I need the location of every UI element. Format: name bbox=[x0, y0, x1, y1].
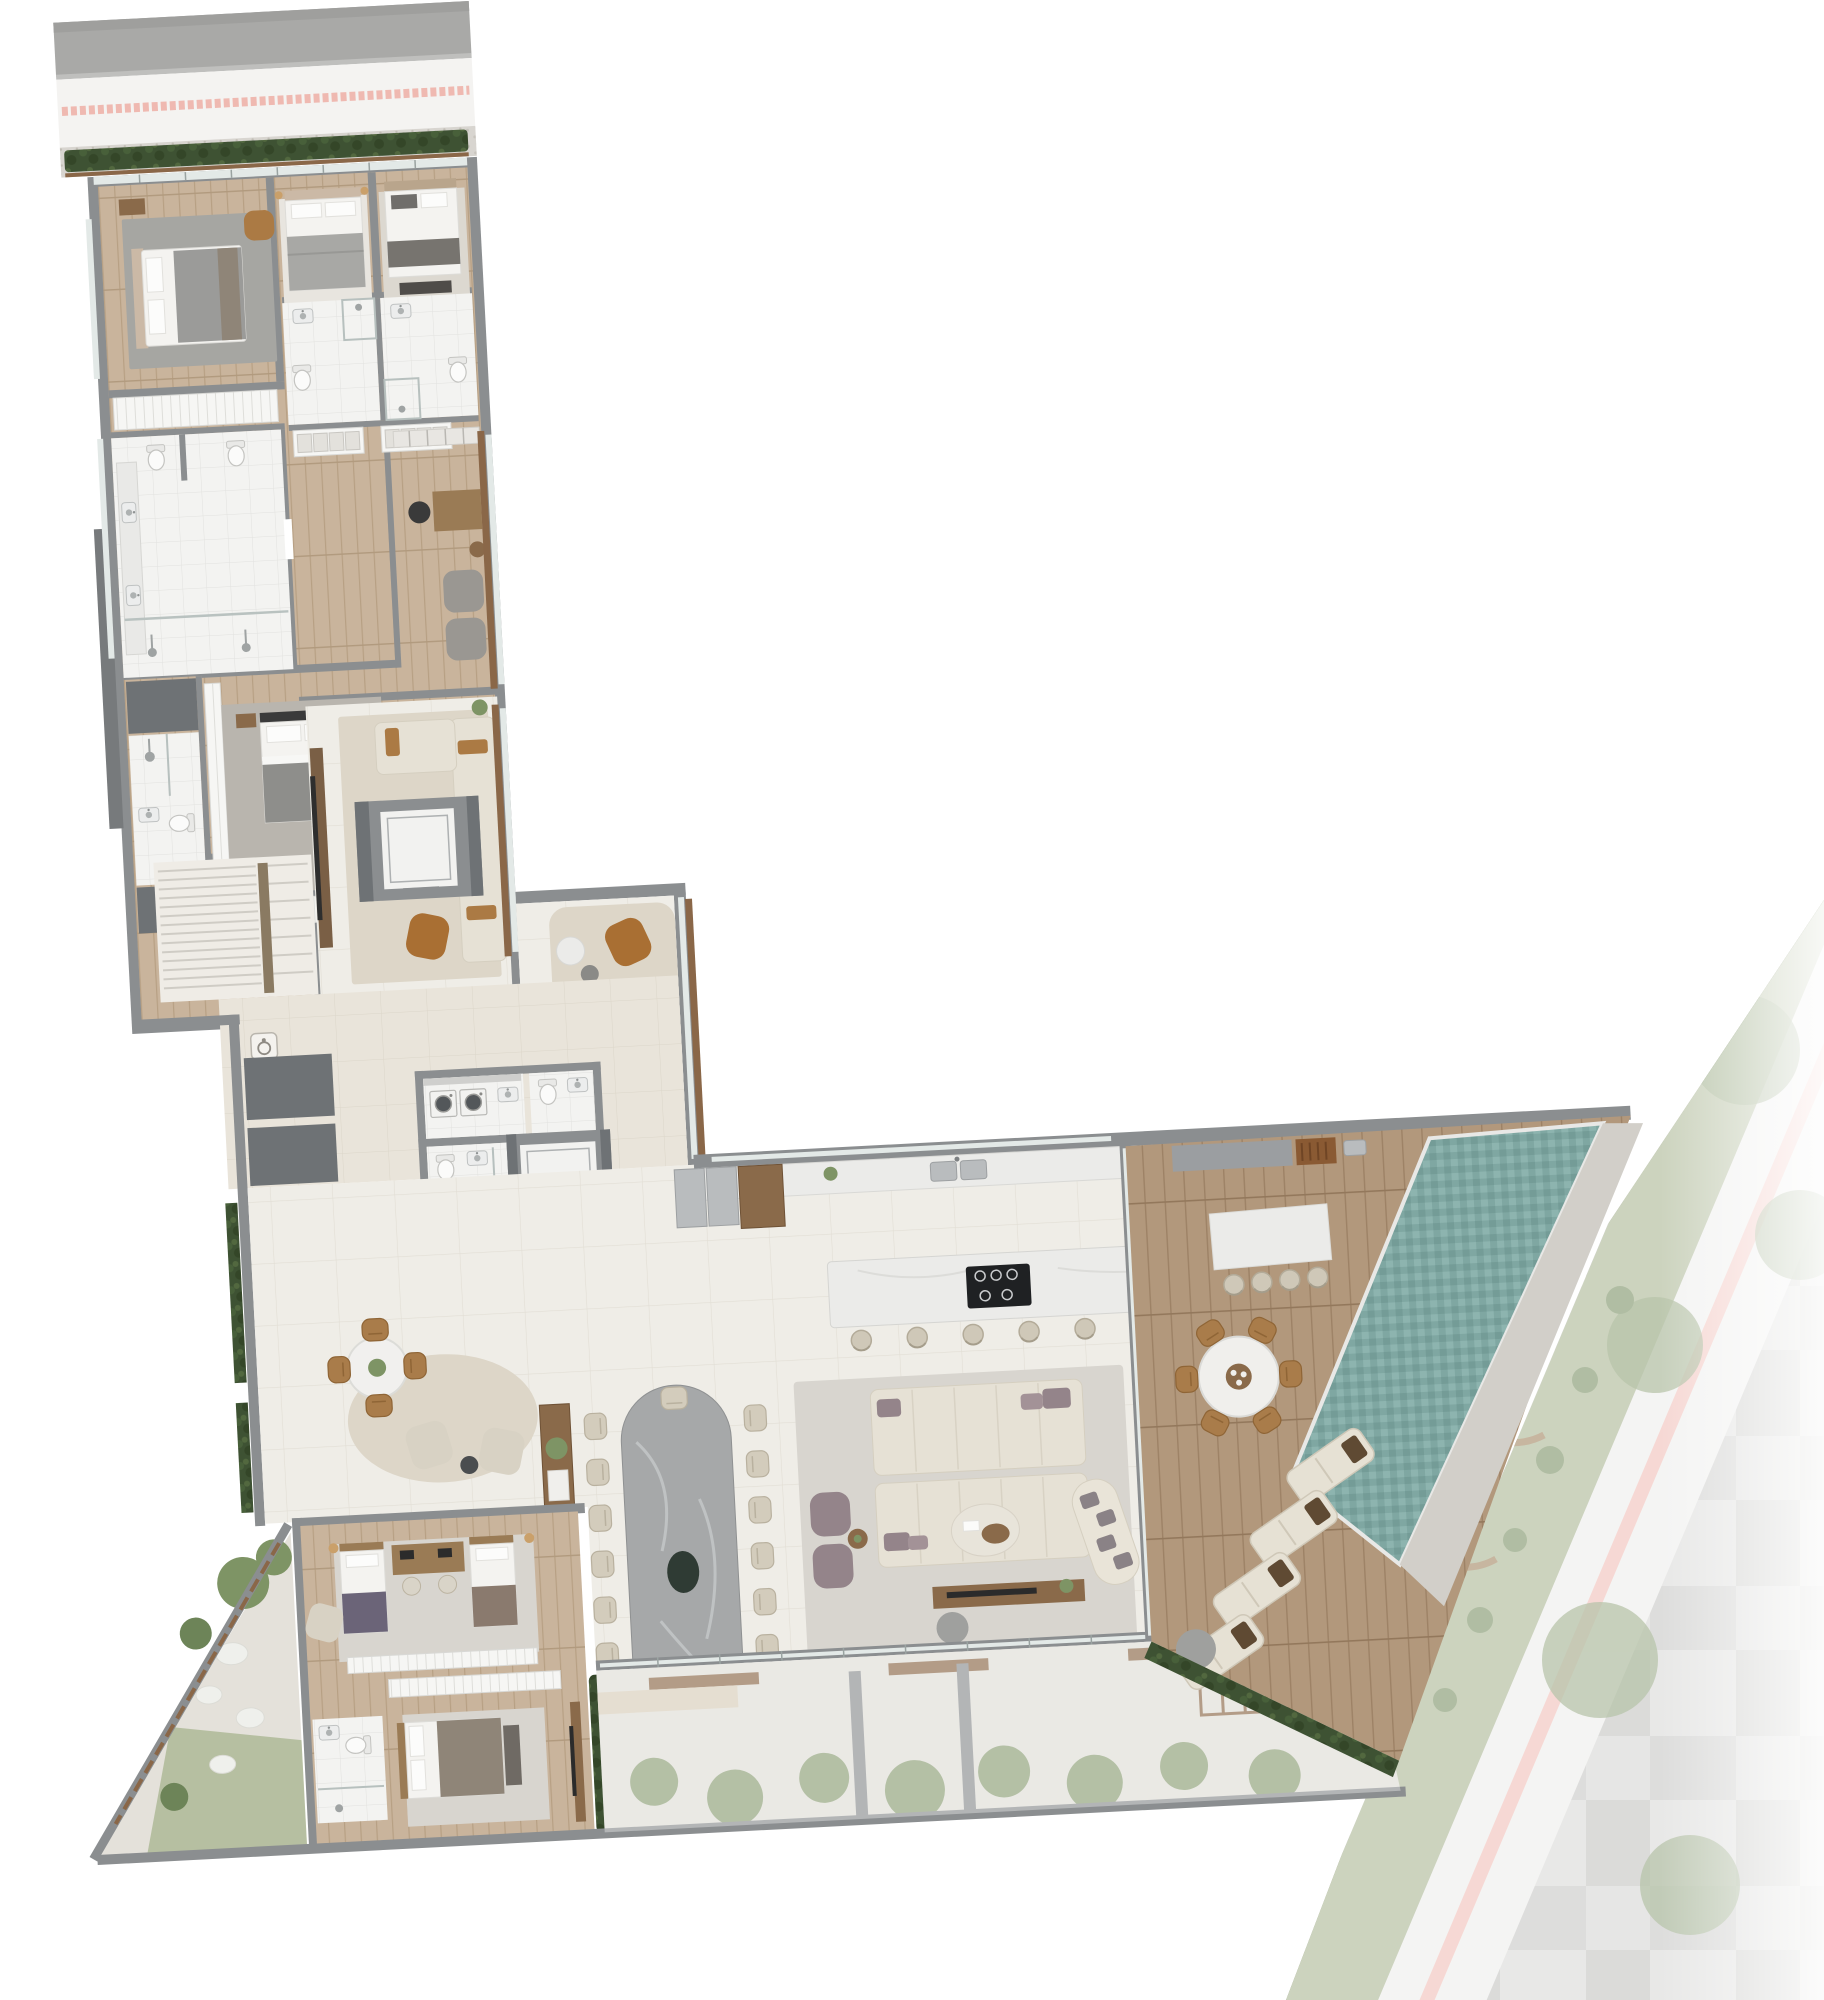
master-bathroom bbox=[111, 429, 299, 678]
private-garden bbox=[76, 1524, 307, 1859]
fade-edge bbox=[1660, 860, 1824, 2000]
armchair bbox=[445, 617, 487, 661]
floor-plan-svg bbox=[0, 0, 1824, 2000]
elevator-social bbox=[354, 796, 483, 902]
plan-rotated-group bbox=[0, 0, 1678, 1865]
floor-plan-image bbox=[0, 0, 1824, 2000]
armchair bbox=[443, 569, 485, 613]
street-north bbox=[53, 1, 477, 178]
guest-bathroom bbox=[312, 1716, 387, 1824]
accessibility-icon bbox=[250, 1033, 277, 1060]
outdoor-bar bbox=[1209, 1204, 1333, 1296]
nightstand bbox=[119, 198, 146, 215]
accent-armchair bbox=[809, 1491, 851, 1537]
accent-armchair bbox=[812, 1543, 854, 1589]
armchair bbox=[243, 210, 275, 242]
bedroom-3 bbox=[378, 178, 471, 310]
staircase bbox=[153, 854, 318, 1002]
desk bbox=[432, 489, 482, 531]
guest-suites bbox=[292, 1502, 619, 1852]
